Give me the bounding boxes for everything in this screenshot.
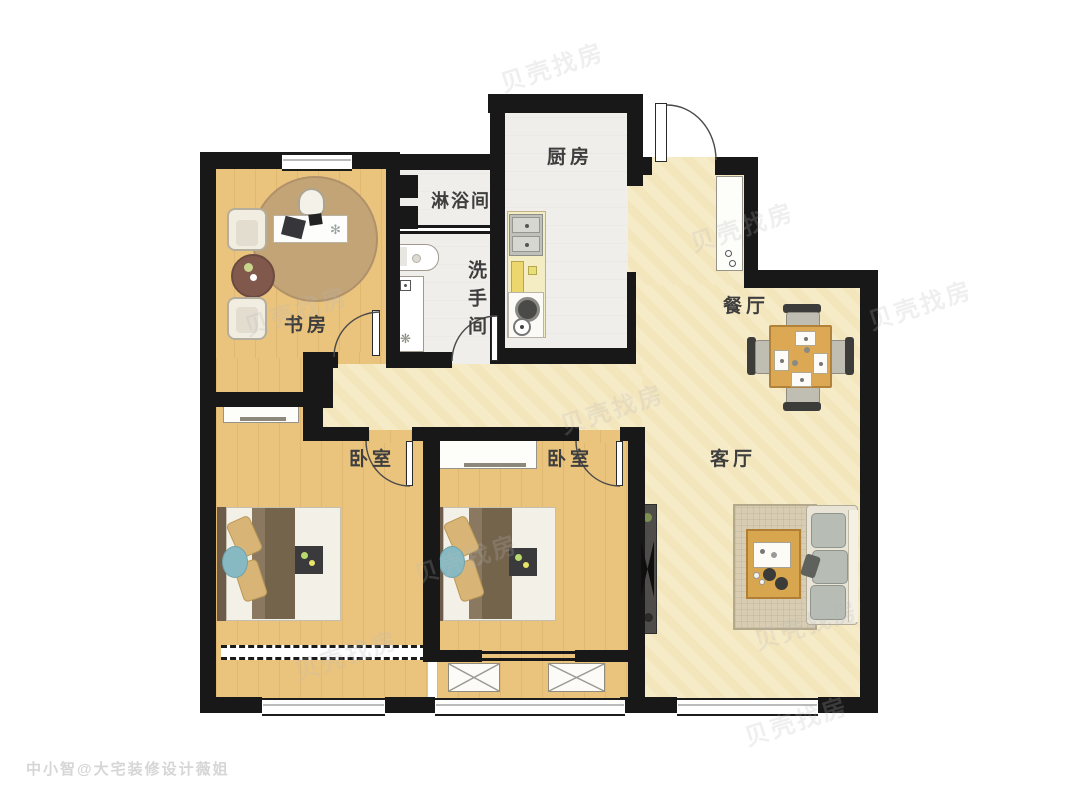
watermark-brand: 贝壳找房 (863, 270, 977, 337)
dining-chair-back (845, 337, 854, 375)
wall-segment (628, 427, 645, 713)
stove (508, 292, 544, 338)
room-label-study: 书房 (275, 316, 339, 335)
sofa-back (848, 510, 858, 622)
room-label-dining: 餐厅 (714, 297, 778, 316)
washroom-door-leaf (491, 315, 498, 361)
room-label-bedroom1: 卧室 (340, 450, 404, 469)
sofa-cushion (811, 513, 846, 548)
entry-cabinet (716, 176, 743, 271)
bay-line (482, 658, 575, 661)
plant-icon (244, 263, 253, 272)
dining-chair-back (783, 402, 821, 411)
wall-pier (423, 650, 482, 662)
wall-pier (575, 650, 633, 662)
study-side-table (231, 254, 275, 298)
armchair (227, 208, 267, 251)
knob-icon (729, 260, 736, 267)
wardrobe-handle (464, 463, 526, 467)
bathroom-sink: ❋ (396, 276, 424, 352)
decor-branch-icon: ❋ (400, 331, 411, 347)
bedroom2-door-leaf (616, 441, 623, 486)
wall-segment (200, 152, 216, 713)
wall-segment (498, 348, 636, 364)
dining-table (769, 325, 832, 388)
sofa-cushion (810, 585, 846, 620)
study-floor-extension (216, 358, 306, 396)
watermark-credit: 中小智@大宅装修设计薇姐 (26, 758, 230, 779)
wall-pier (200, 697, 262, 713)
double-bed (443, 507, 556, 621)
desk-chair (298, 188, 325, 216)
entrance-door-leaf (655, 103, 667, 162)
bay-line (482, 651, 575, 654)
wall-segment (860, 270, 878, 713)
study-door-leaf (372, 310, 380, 356)
bay-window-panel (448, 663, 500, 692)
wall-segment (303, 427, 369, 441)
watermark-brand: 贝壳找房 (495, 32, 609, 99)
desk-item (308, 213, 322, 226)
wall-pier (620, 697, 677, 713)
knob-icon (725, 250, 732, 257)
room-label-kitchen: 厨房 (538, 148, 602, 167)
round-pillow (222, 546, 248, 578)
wall-segment (627, 272, 636, 358)
window (435, 698, 625, 716)
placemat (795, 331, 816, 346)
wall-pier (385, 697, 435, 713)
room-label-washroom: 洗手间 (466, 252, 485, 352)
wall-segment (390, 154, 505, 170)
toilet (397, 244, 439, 271)
room-label-living: 客厅 (701, 450, 765, 469)
door-swing-arc (667, 105, 716, 160)
placemat (813, 353, 828, 374)
wardrobe-handle (240, 417, 286, 421)
placemat (774, 350, 789, 371)
counter-item (528, 266, 537, 275)
counter-item (511, 261, 524, 294)
wall-segment (423, 427, 440, 662)
wall-segment (715, 157, 758, 175)
bed-tray (295, 546, 323, 574)
round-pillow (439, 546, 465, 578)
double-bed (226, 507, 341, 621)
partition-line (396, 225, 498, 228)
placemat (791, 372, 812, 387)
burner-icon (513, 318, 531, 336)
partition-line (396, 231, 498, 234)
armchair (227, 297, 267, 340)
floor-plan: ✻ ❋ (0, 0, 1080, 810)
wall-segment (488, 94, 643, 113)
desk-plant: ✻ (330, 222, 341, 238)
room-label-bedroom2: 卧室 (538, 450, 602, 469)
room-label-shower: 淋浴间 (416, 192, 506, 210)
bedroom1-door-leaf (406, 441, 413, 486)
decor-icon (644, 613, 653, 622)
window (677, 698, 818, 716)
decor-icon (775, 577, 788, 590)
bay-window-panel (548, 663, 605, 692)
wall-segment (744, 270, 878, 288)
tray (753, 542, 791, 568)
faucet-icon (400, 280, 411, 291)
wardrobe (436, 437, 537, 469)
decor-icon (763, 568, 776, 581)
wall-segment (627, 157, 652, 175)
bed-tray (509, 548, 537, 576)
coffee-table (746, 529, 801, 599)
corridor-floor (318, 364, 642, 430)
kitchen-sink (509, 214, 543, 256)
dashed-boundary (221, 645, 426, 660)
wall-segment (386, 352, 452, 368)
wall-pier (398, 175, 418, 198)
window (262, 698, 385, 716)
window (282, 153, 352, 171)
